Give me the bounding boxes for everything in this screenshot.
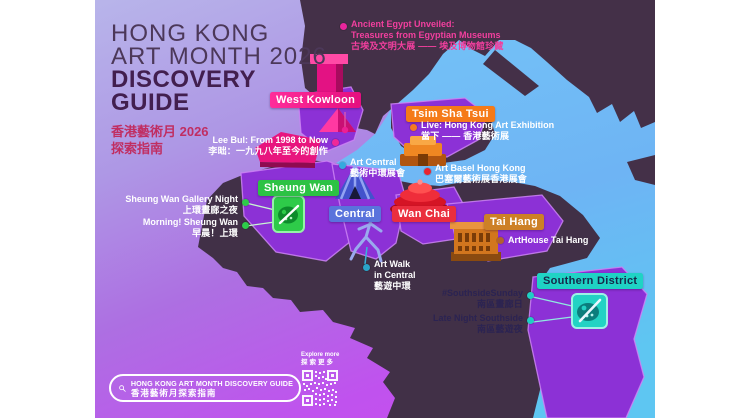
title-line-2: ART MONTH 2026	[111, 45, 327, 68]
event-marker-dot	[410, 124, 417, 131]
event-marker-dot	[242, 222, 249, 229]
poster-canvas: HONG KONG ART MONTH 2026 DISCOVERY GUIDE…	[95, 0, 655, 418]
sheung-wan-palette-icon	[273, 196, 304, 232]
qr-block[interactable]: Explore more 探索更多	[301, 352, 343, 407]
event-marker-dot	[339, 162, 346, 169]
event-art-central: Art Central 藝術中環展會	[350, 157, 405, 179]
title-line-3: DISCOVERY	[111, 68, 327, 91]
event-text-en: Art Walk	[374, 259, 416, 270]
event-morning-sheung-wan: Morning! Sheung Wan 早晨！上環	[143, 217, 238, 239]
event-text-en: Late Night Southside	[433, 313, 523, 324]
search-text-zh: 香港藝術月探索指南	[131, 388, 293, 398]
event-text-en: Live: Hong Kong Art Exhibition	[421, 120, 554, 131]
southern-district-palette-icon	[572, 294, 607, 328]
qr-caption-zh: 探索更多	[301, 359, 343, 367]
district-shape-southern-district[interactable]	[528, 267, 647, 418]
event-late-night-southside: Late Night Southside 南區藝遊夜	[433, 313, 523, 335]
event-text-en: #SouthsideSunday	[442, 288, 523, 299]
event-marker-dot	[424, 168, 431, 175]
search-bar[interactable]: HONG KONG ART MONTH DISCOVERY GUIDE 香港藝術…	[109, 374, 301, 402]
qr-caption-en: Explore more	[301, 352, 343, 359]
search-text-en: HONG KONG ART MONTH DISCOVERY GUIDE	[131, 379, 293, 388]
district-label-wan-chai[interactable]: Wan Chai	[392, 206, 456, 222]
event-marker-dot	[242, 199, 249, 206]
event-text-en: Sheung Wan Gallery Night	[125, 194, 238, 205]
district-label-central[interactable]: Central	[329, 206, 381, 222]
page: HONG KONG ART MONTH 2026 DISCOVERY GUIDE…	[0, 0, 750, 418]
search-icon	[119, 382, 126, 395]
event-marker-dot	[340, 23, 347, 30]
event-text-zh: 南區藝遊夜	[433, 324, 523, 335]
event-text-zh: 上環畫廊之夜	[125, 205, 238, 216]
event-art-walk: Art Walk in Central 藝遊中環	[374, 259, 416, 292]
event-text-en: Morning! Sheung Wan	[143, 217, 238, 228]
event-marker-dot	[363, 264, 370, 271]
event-sheung-wan-gallery-night: Sheung Wan Gallery Night 上環畫廊之夜	[125, 194, 238, 216]
title-line-1: HONG KONG	[111, 22, 327, 45]
event-marker-dot	[527, 317, 534, 324]
event-live-hk-art: Live: Hong Kong Art Exhibition 當下 —— 香港藝…	[421, 120, 554, 142]
event-text-zh: 南區畫廊日	[442, 299, 523, 310]
event-text-en: Ancient Egypt Unveiled:	[351, 19, 504, 30]
event-text-zh: 早晨！上環	[143, 228, 238, 239]
district-label-southern-district[interactable]: Southern District	[537, 273, 643, 289]
event-text-zh: 藝遊中環	[374, 281, 416, 292]
event-arthouse-tai-hang: ArtHouse Tai Hang	[508, 235, 588, 246]
event-text-en: in Central	[374, 270, 416, 281]
event-ancient-egypt: Ancient Egypt Unveiled: Treasures from E…	[351, 19, 504, 52]
qr-code[interactable]	[301, 369, 339, 407]
event-marker-dot	[332, 139, 339, 146]
district-label-west-kowloon[interactable]: West Kowloon	[270, 92, 361, 108]
event-text-en: Art Basel Hong Kong	[435, 163, 527, 174]
event-art-basel: Art Basel Hong Kong 巴塞爾藝術展香港展會	[435, 163, 527, 185]
search-bar-text: HONG KONG ART MONTH DISCOVERY GUIDE 香港藝術…	[131, 379, 293, 398]
event-text-en: Lee Bul: From 1998 to Now	[208, 135, 328, 146]
event-text-zh: 當下 —— 香港藝術展	[421, 131, 554, 142]
event-text-zh: 巴塞爾藝術展香港展會	[435, 174, 527, 185]
event-marker-dot	[497, 237, 504, 244]
event-text-zh: 李昢：一九九八年至今的創作	[208, 146, 328, 157]
event-marker-dot	[527, 292, 534, 299]
event-text-zh: 古埃及文明大展 —— 埃及博物館珍藏	[351, 41, 504, 52]
district-label-tai-hang[interactable]: Tai Hang	[484, 214, 544, 230]
event-text-en: ArtHouse Tai Hang	[508, 235, 588, 246]
event-lee-bul: Lee Bul: From 1998 to Now 李昢：一九九八年至今的創作	[208, 135, 328, 157]
event-text-zh: 藝術中環展會	[350, 168, 405, 179]
event-southside-sunday: #SouthsideSunday 南區畫廊日	[442, 288, 523, 310]
district-label-sheung-wan[interactable]: Sheung Wan	[258, 180, 339, 196]
event-text-en: Art Central	[350, 157, 405, 168]
event-text-en: Treasures from Egyptian Museums	[351, 30, 504, 41]
